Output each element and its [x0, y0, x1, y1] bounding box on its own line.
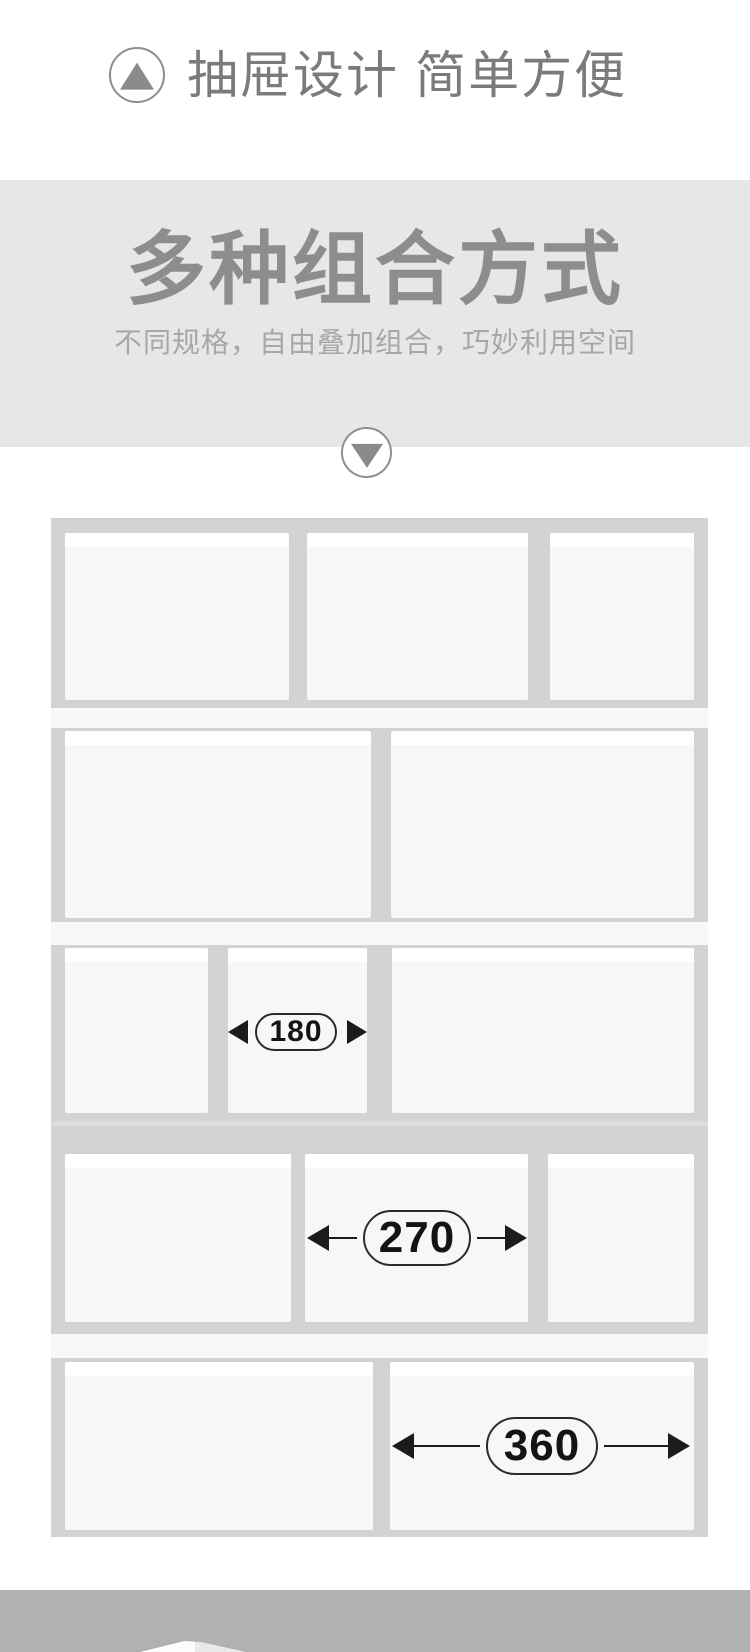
drawer-box-top-edge	[391, 731, 694, 745]
tray-divider-strip	[51, 1334, 708, 1358]
left-arrow-icon	[392, 1433, 414, 1459]
left-arrow-icon	[307, 1225, 329, 1251]
feature-band: 多种组合方式 不同规格，自由叠加组合，巧妙利用空间	[0, 180, 750, 447]
drawer-box-top-edge	[65, 948, 208, 962]
footer-band	[0, 1590, 750, 1652]
tray-divider-strip	[51, 922, 708, 945]
right-arrow-icon	[347, 1020, 367, 1044]
header-title: 抽屉设计 简单方便	[187, 46, 627, 106]
right-arrow-icon	[668, 1433, 690, 1459]
left-arrow-shaft	[412, 1445, 480, 1447]
drawer-box-top-edge	[550, 533, 694, 547]
drawer-box	[392, 948, 694, 1113]
drawer-box-top-edge	[390, 1362, 694, 1376]
up-triangle-glyph	[120, 63, 154, 90]
section-subtitle: 不同规格，自由叠加组合，巧妙利用空间	[0, 329, 750, 357]
drawer-box-top-edge	[65, 1154, 291, 1168]
drawer-box	[550, 533, 694, 700]
header-row: 抽屉设计 简单方便	[0, 0, 750, 180]
right-arrow-shaft	[477, 1237, 507, 1239]
drawer-box-top-edge	[307, 533, 528, 547]
drawer-tray: 180270360	[51, 518, 708, 1537]
drawer-box-top-edge	[305, 1154, 528, 1168]
drawer-box	[391, 731, 694, 918]
dimension-label: 270	[363, 1210, 471, 1266]
drawer-box	[65, 731, 371, 918]
drawer-box	[548, 1154, 694, 1322]
dimension-label: 180	[255, 1013, 337, 1051]
drawer-box-top-edge	[65, 533, 289, 547]
drawer-box	[307, 533, 528, 700]
drawer-box-top-edge	[392, 948, 694, 962]
dimension-label: 360	[486, 1417, 598, 1475]
tray-divider-strip	[51, 708, 708, 728]
drawer-box	[65, 948, 208, 1113]
tray-seam	[51, 1121, 708, 1126]
drawer-box-top-edge	[548, 1154, 694, 1168]
product-photo-fragment	[140, 1641, 246, 1652]
drawer-box-top-edge	[65, 731, 371, 745]
down-arrow-icon	[341, 427, 392, 478]
drawer-box-top-edge	[65, 1362, 373, 1376]
drawer-box	[65, 1362, 373, 1530]
section-title: 多种组合方式	[0, 230, 750, 310]
left-arrow-shaft	[327, 1237, 357, 1239]
right-arrow-icon	[505, 1225, 527, 1251]
right-arrow-shaft	[604, 1445, 670, 1447]
drawer-box	[65, 533, 289, 700]
left-arrow-icon	[228, 1020, 248, 1044]
up-arrow-icon	[109, 47, 165, 103]
drawer-box	[65, 1154, 291, 1322]
drawer-box-top-edge	[228, 948, 367, 962]
down-triangle-glyph	[351, 443, 383, 467]
